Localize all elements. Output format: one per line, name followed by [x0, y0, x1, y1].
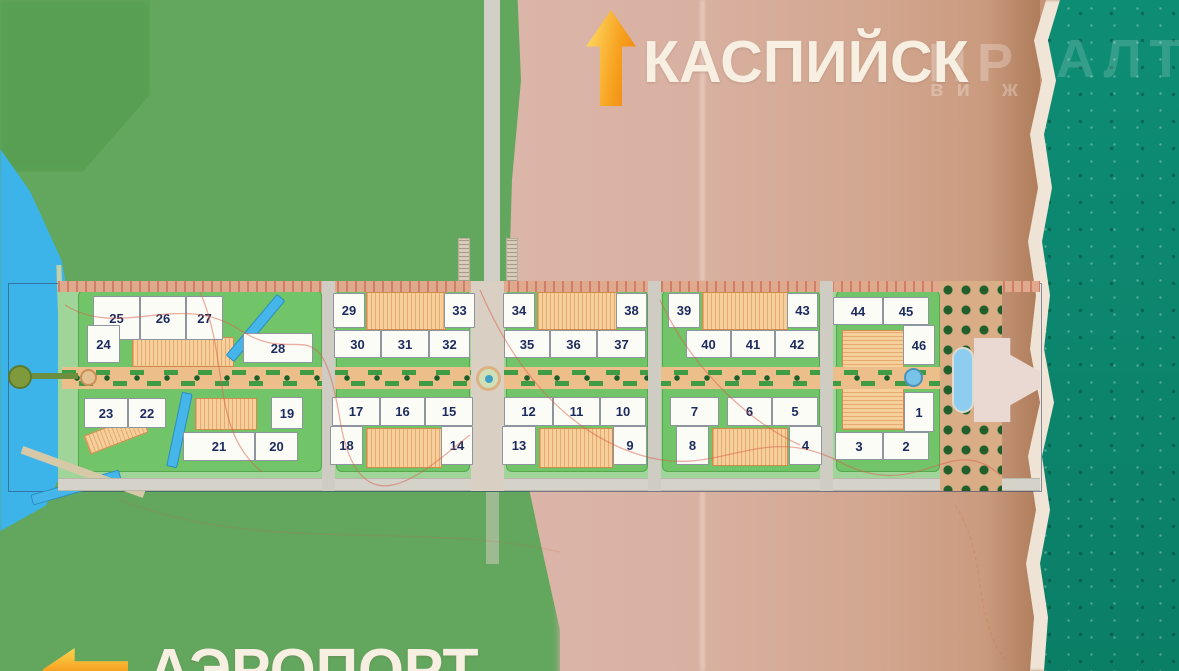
watermark-text: АЛТ: [1056, 32, 1179, 86]
masterplan-map: 2526272428232219212029333031321716151814…: [0, 0, 1179, 671]
north-direction-label: КАСПИЙСК: [643, 33, 969, 92]
south-direction-label: АЭРОПОРТ: [148, 641, 479, 671]
